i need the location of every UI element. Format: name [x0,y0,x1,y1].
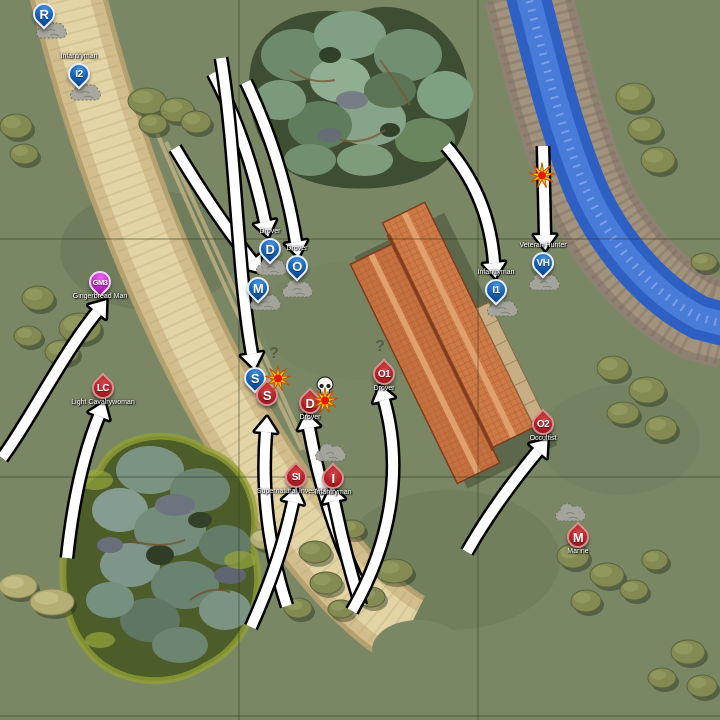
battle-map: ??RI2InfantrymanDDroverODroverMSI1Infant… [0,0,720,720]
river [527,0,720,325]
unit-letter: O [286,255,308,277]
unit-letter: VH [532,252,554,274]
unit-letter: O1 [373,363,395,385]
unit-letter: O2 [532,413,554,435]
rocks [97,537,123,553]
terrain-layer [0,0,720,720]
unit-letter: LC [92,377,114,399]
unit-letter: I2 [68,63,90,85]
unit-letter: S [256,384,278,406]
unit-marker-blue-O[interactable]: O [281,250,312,281]
rocks [155,494,195,516]
unit-letter: M [247,277,269,299]
unit-marker-special-GM3[interactable]: GM3 [84,266,115,297]
unit-letter: I [322,467,344,489]
unit-marker-blue-D[interactable]: D [254,233,285,264]
unit-marker-red-SI[interactable]: SI [280,461,311,492]
unit-letter: GM3 [89,271,111,293]
unit-marker-red-D[interactable]: D [294,387,325,418]
rocks [336,91,368,109]
unit-marker-blue-I2[interactable]: I2 [63,58,94,89]
unit-marker-blue-I1[interactable]: I1 [480,274,511,305]
rocks [318,128,342,142]
unit-letter: R [33,3,55,25]
unit-marker-red-I[interactable]: I [317,462,348,493]
unit-marker-blue-VH[interactable]: VH [527,247,558,278]
unit-marker-red-S[interactable]: S [251,379,282,410]
unit-letter: D [259,238,281,260]
unit-letter: M [567,526,589,548]
smoke-marker [555,504,585,521]
unit-marker-blue-M[interactable]: M [242,272,273,303]
unit-letter: I1 [485,279,507,301]
unit-marker-red-LC[interactable]: LC [87,372,118,403]
unit-marker-red-O2[interactable]: O2 [527,408,558,439]
unit-marker-red-O1[interactable]: O1 [368,358,399,389]
unit-letter: D [299,392,321,414]
unit-letter: SI [285,466,307,488]
unit-marker-red-M[interactable]: M [562,521,593,552]
forest-bottom-left [63,436,258,681]
